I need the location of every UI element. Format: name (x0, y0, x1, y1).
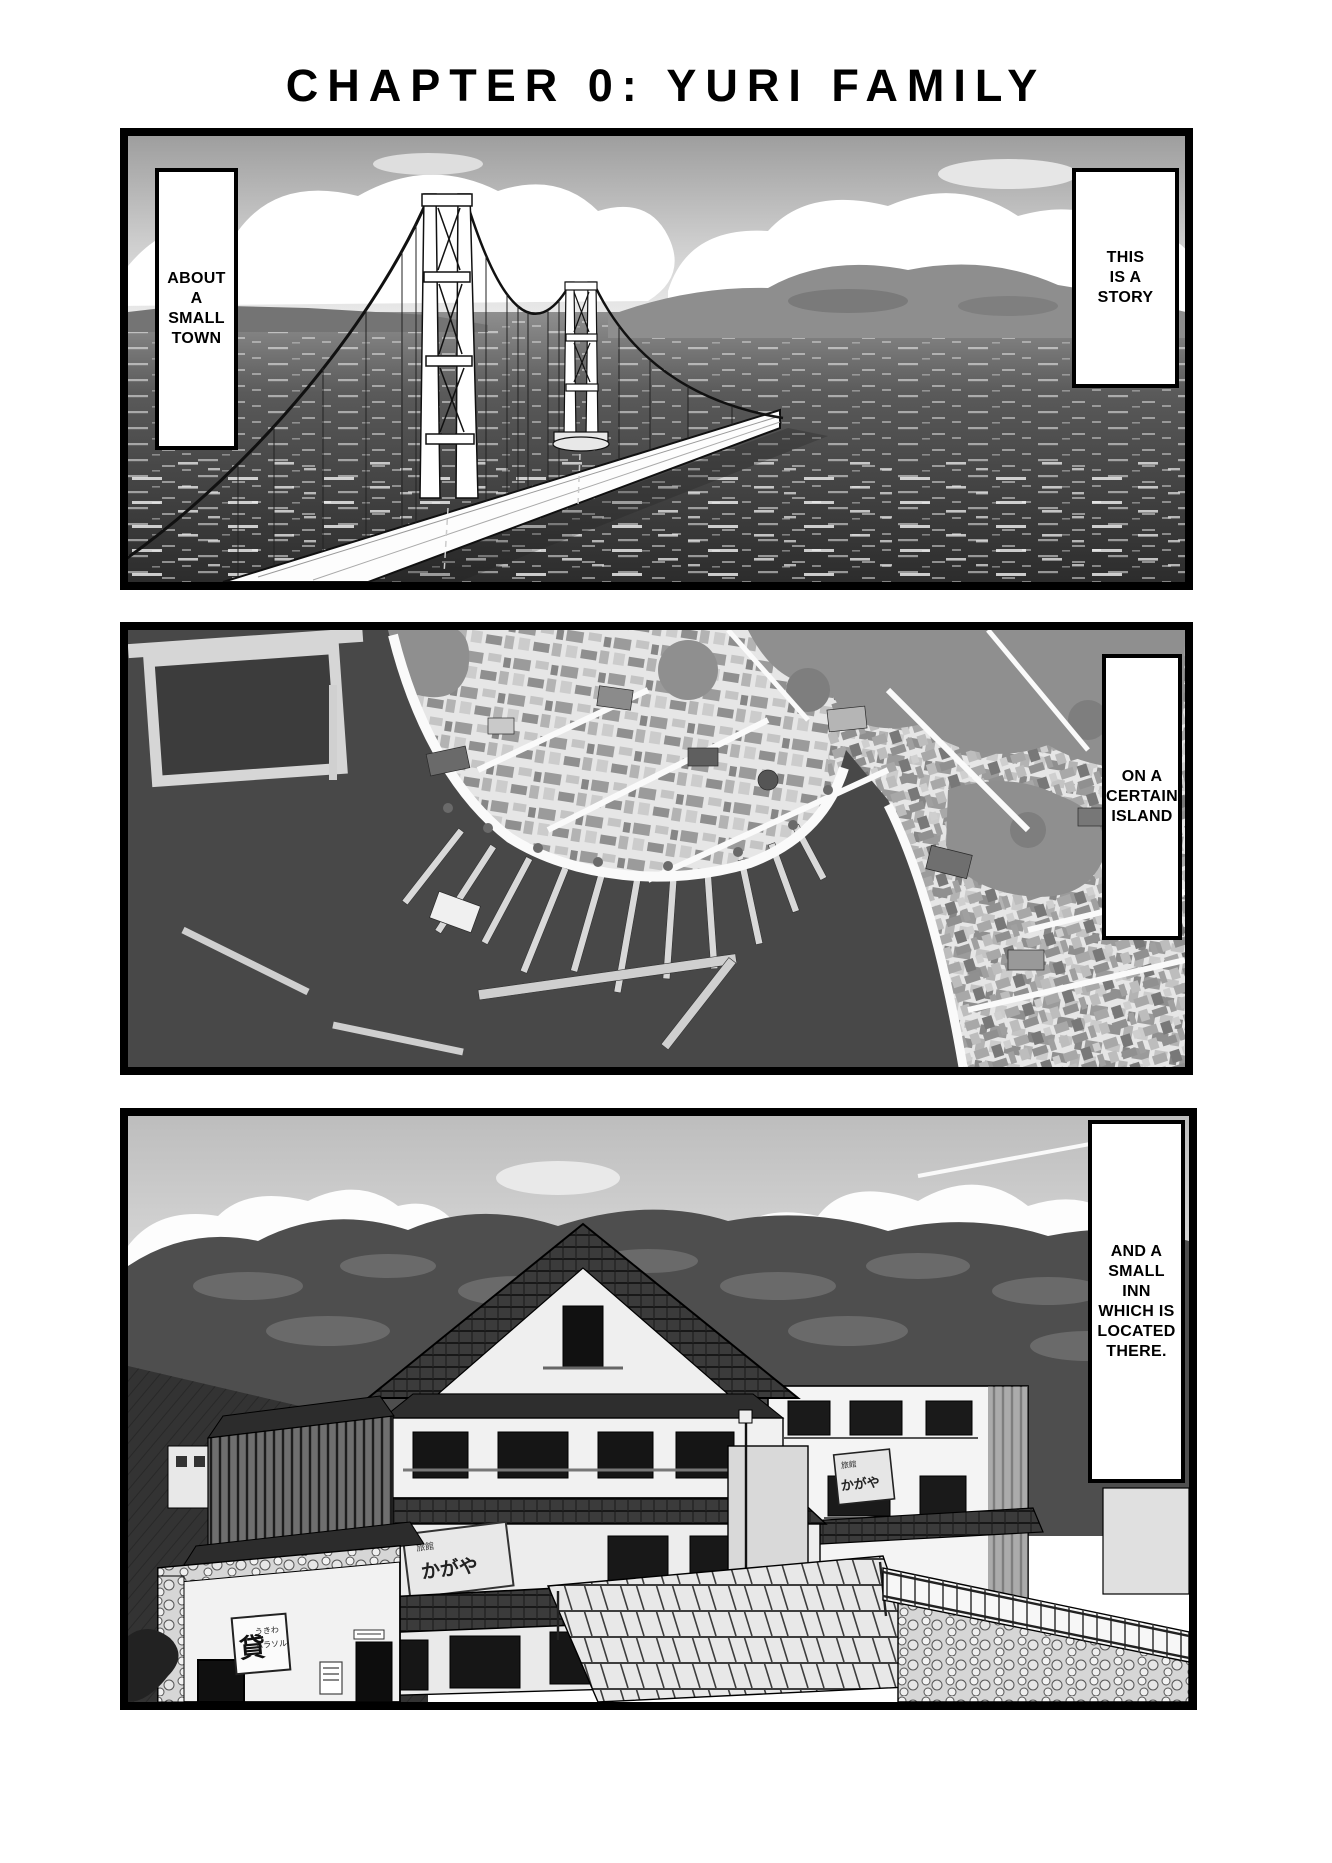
bridge-scene-illustration (128, 136, 1185, 582)
door-plate-sign (354, 1630, 384, 1639)
inn-side-sign: 旅館 かがや (834, 1449, 895, 1505)
caption-on-a-certain-island: ON A CERTAIN ISLAND (1102, 654, 1182, 940)
panel-harbor-aerial (120, 622, 1193, 1075)
caption-small-inn: AND A SMALL INN WHICH IS LOCATED THERE. (1088, 1120, 1185, 1483)
inn-scene-illustration: 旅館 かがや (128, 1116, 1189, 1702)
inn-main-sign: 旅館 かがや (402, 1522, 513, 1598)
chapter-title: CHAPTER 0: YURI FAMILY (0, 60, 1332, 112)
tower-pier (553, 432, 609, 451)
sea (128, 312, 1185, 582)
caption-this-is-a-story: THIS IS A STORY (1072, 168, 1179, 388)
rental-shop: 貸 うきわ パラソル (158, 1546, 400, 1702)
caption-about-small-town: ABOUT A SMALL TOWN (155, 168, 238, 450)
rental-sign: 貸 うきわ パラソル (232, 1614, 291, 1674)
panel-bridge (120, 128, 1193, 590)
notice-sign (320, 1662, 342, 1694)
harbor-scene-illustration (128, 630, 1185, 1067)
svg-text:旅館: 旅館 (840, 1459, 857, 1471)
manga-page: CHAPTER 0: YURI FAMILY (0, 0, 1332, 1863)
panel-inn: 旅館 かがや (120, 1108, 1197, 1710)
